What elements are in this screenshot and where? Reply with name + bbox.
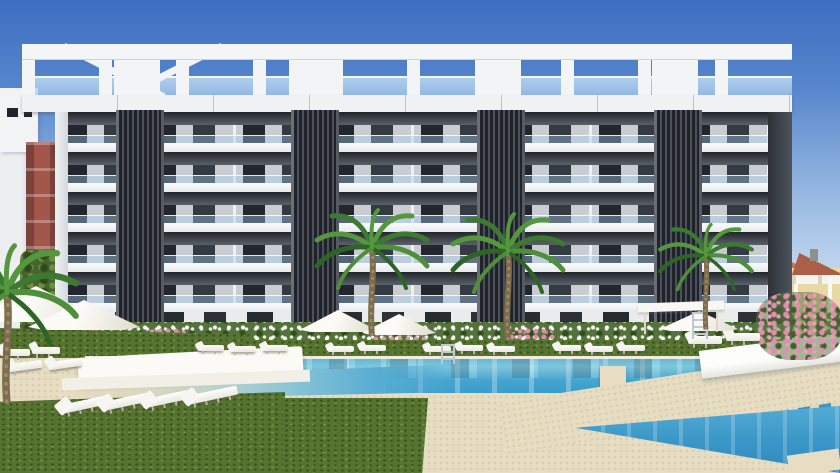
rooftop-parapet-block <box>652 58 698 95</box>
palm-tree <box>312 212 432 346</box>
louvered-accent-tower <box>116 110 164 342</box>
sun-lounger <box>262 345 288 351</box>
palm-tree <box>0 248 82 416</box>
architectural-rendering <box>0 0 840 473</box>
sun-lounger <box>619 345 645 351</box>
sun-lounger <box>587 346 613 352</box>
oleander-planter <box>756 292 840 360</box>
rooftop-parapet-block <box>475 58 521 95</box>
sun-lounger <box>230 346 256 352</box>
rooftop-parapet-block <box>289 58 335 95</box>
sun-lounger <box>328 346 354 352</box>
lawn-center <box>283 398 428 473</box>
sun-lounger <box>198 345 224 351</box>
palm-tree <box>656 226 756 338</box>
palm-tree <box>448 216 568 350</box>
rooftop-pergola-beam <box>22 44 792 59</box>
